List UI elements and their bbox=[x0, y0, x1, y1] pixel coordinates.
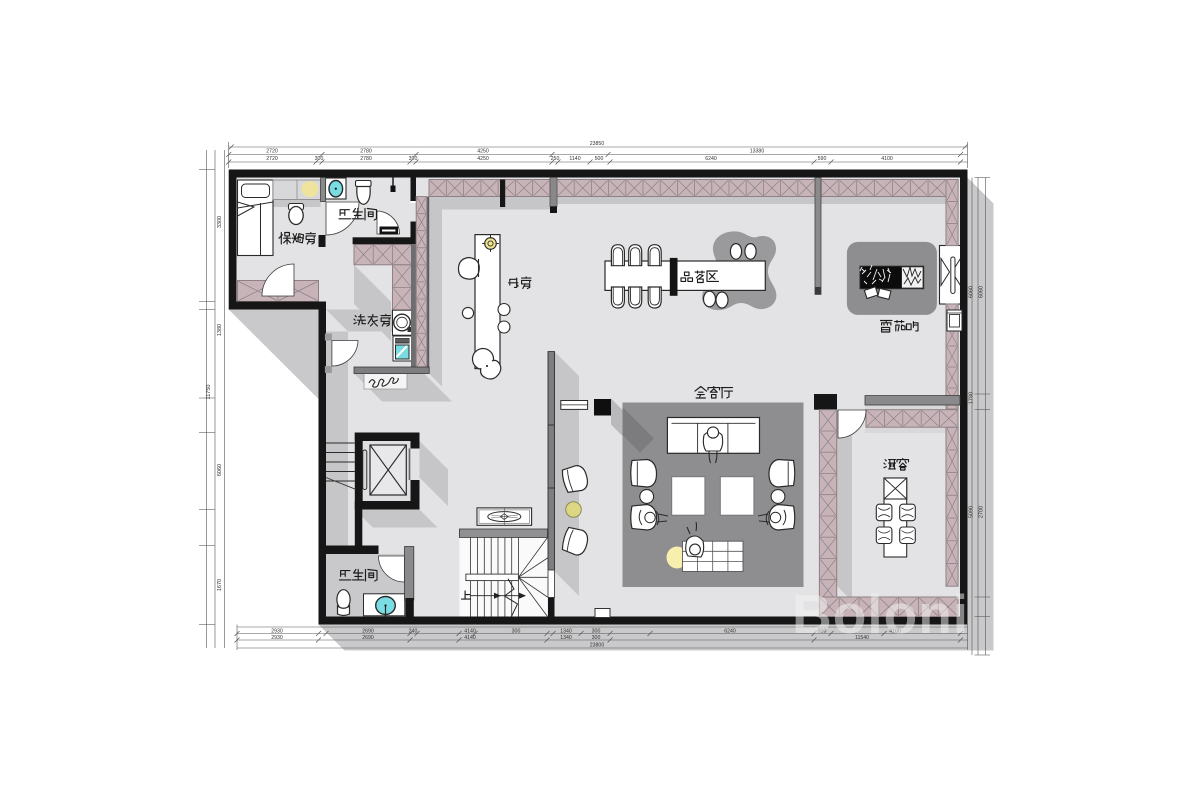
svg-text:2780: 2780 bbox=[360, 156, 372, 162]
svg-text:300: 300 bbox=[592, 629, 601, 635]
svg-text:4250: 4250 bbox=[477, 149, 489, 155]
svg-text:11750: 11750 bbox=[206, 385, 212, 400]
svg-text:4100: 4100 bbox=[881, 156, 893, 162]
svg-text:2690: 2690 bbox=[362, 629, 374, 635]
svg-text:2930: 2930 bbox=[271, 635, 283, 641]
svg-text:4250: 4250 bbox=[477, 156, 489, 162]
svg-text:300: 300 bbox=[315, 156, 324, 162]
svg-text:250: 250 bbox=[551, 156, 560, 162]
svg-text:Boloni: Boloni bbox=[792, 583, 969, 645]
svg-text:2780: 2780 bbox=[360, 149, 372, 155]
svg-text:2690: 2690 bbox=[362, 635, 374, 641]
svg-text:13380: 13380 bbox=[750, 149, 765, 155]
svg-text:1780: 1780 bbox=[969, 392, 975, 404]
svg-text:4140: 4140 bbox=[464, 629, 476, 635]
svg-text:6240: 6240 bbox=[705, 156, 717, 162]
svg-text:23800: 23800 bbox=[590, 643, 605, 649]
svg-text:6060: 6060 bbox=[979, 286, 985, 298]
svg-text:2930: 2930 bbox=[271, 629, 283, 635]
svg-text:500: 500 bbox=[595, 156, 604, 162]
svg-text:4140: 4140 bbox=[464, 635, 476, 641]
svg-text:23850: 23850 bbox=[590, 141, 605, 147]
svg-text:300: 300 bbox=[512, 629, 521, 635]
svg-text:590: 590 bbox=[818, 156, 827, 162]
svg-text:5090: 5090 bbox=[969, 506, 975, 518]
svg-text:1670: 1670 bbox=[217, 579, 223, 591]
svg-text:6240: 6240 bbox=[724, 629, 736, 635]
svg-text:1140: 1140 bbox=[569, 156, 580, 162]
svg-text:1340: 1340 bbox=[560, 629, 572, 635]
svg-text:1380: 1380 bbox=[217, 324, 223, 336]
svg-text:3300: 3300 bbox=[217, 216, 223, 228]
svg-text:390: 390 bbox=[409, 156, 418, 162]
svg-text:1340: 1340 bbox=[560, 635, 572, 641]
svg-text:2720: 2720 bbox=[266, 156, 278, 162]
svg-text:2720: 2720 bbox=[266, 149, 278, 155]
svg-text:6060: 6060 bbox=[217, 464, 223, 476]
svg-text:300: 300 bbox=[592, 635, 601, 641]
svg-text:2700: 2700 bbox=[979, 506, 985, 518]
svg-text:240: 240 bbox=[409, 629, 418, 635]
svg-text:6060: 6060 bbox=[969, 286, 975, 298]
